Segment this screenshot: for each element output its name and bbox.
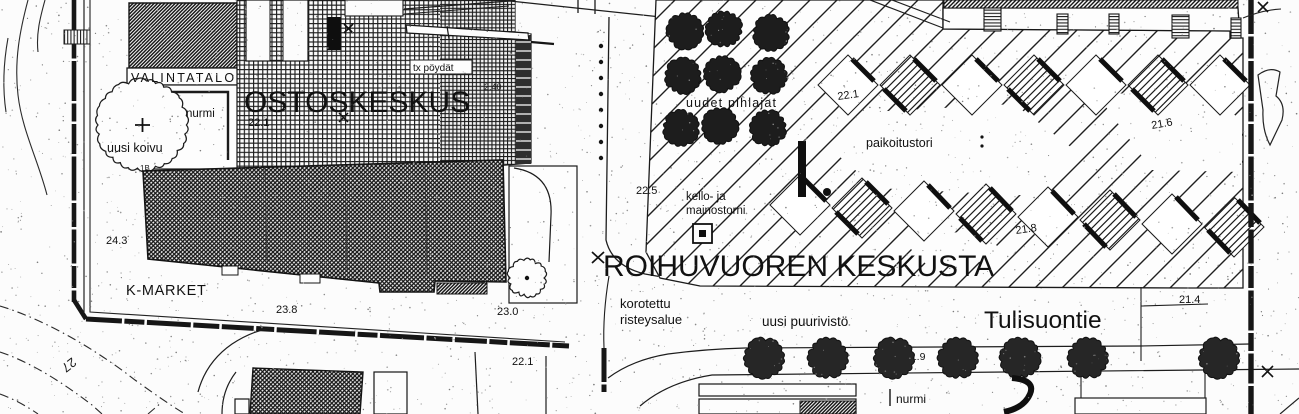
svg-text:Tulisuontie: Tulisuontie — [984, 307, 1102, 334]
svg-text:paikoitustori: paikoitustori — [866, 136, 933, 150]
svg-text:nurmi: nurmi — [186, 108, 215, 120]
svg-text:VALINTATALO: VALINTATALO — [131, 71, 236, 85]
svg-text:22.5: 22.5 — [636, 185, 657, 197]
svg-text:23.0: 23.0 — [497, 306, 518, 318]
svg-text:24.3: 24.3 — [106, 235, 127, 247]
svg-text:mainostorni: mainostorni — [686, 205, 745, 217]
svg-text:21.4: 21.4 — [1179, 294, 1200, 306]
svg-text:23.8: 23.8 — [276, 304, 297, 316]
svg-text:OSTOSKESKUS: OSTOSKESKUS — [244, 86, 470, 119]
svg-text:2.40: 2.40 — [484, 82, 502, 92]
svg-text:uudet pihlajat: uudet pihlajat — [686, 96, 777, 110]
svg-text:22.1: 22.1 — [512, 356, 533, 368]
svg-text:nurmi: nurmi — [896, 392, 926, 406]
svg-text:risteysalue: risteysalue — [620, 312, 682, 327]
svg-text:22.1: 22.1 — [248, 117, 269, 129]
svg-text:kello- ja: kello- ja — [686, 191, 726, 203]
svg-text:korotettu: korotettu — [620, 296, 671, 311]
svg-text:tx pöydät: tx pöydät — [413, 63, 454, 74]
svg-text:K-MARKET: K-MARKET — [126, 283, 207, 299]
svg-text:ROIHUVUOREN KESKUSTA: ROIHUVUOREN KESKUSTA — [603, 250, 994, 283]
svg-text:uusi puurivistö: uusi puurivistö — [762, 314, 848, 329]
